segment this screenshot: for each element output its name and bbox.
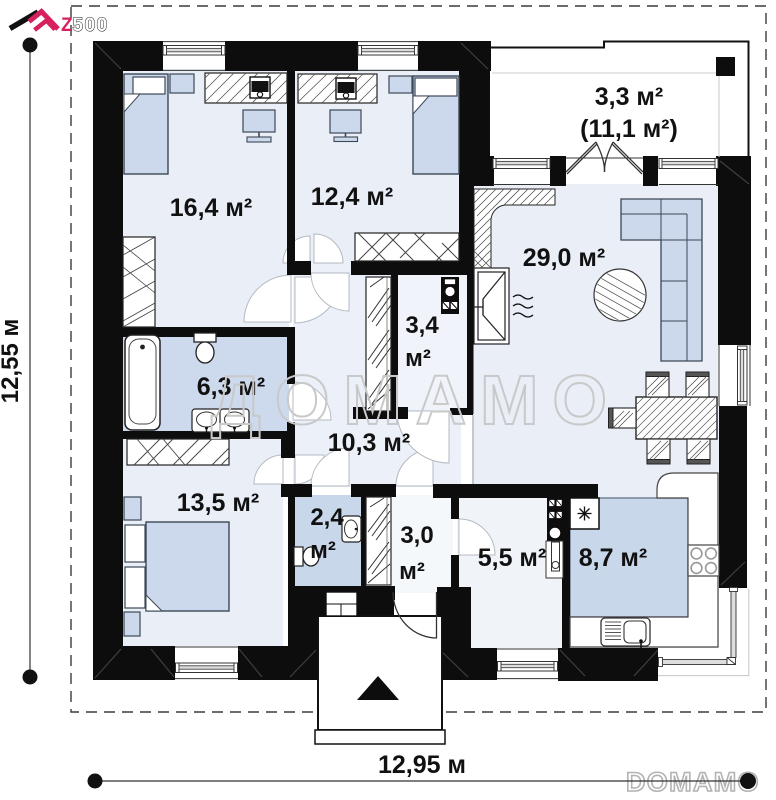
svg-text:12,95 м: 12,95 м [378, 751, 466, 779]
svg-text:3,0: 3,0 [400, 522, 433, 549]
svg-text:ДОМАМО: ДОМАМО [211, 361, 621, 439]
svg-text:3,3 м²: 3,3 м² [595, 83, 664, 111]
svg-text:5,5 м²: 5,5 м² [478, 544, 547, 572]
svg-text:12,4 м²: 12,4 м² [311, 183, 393, 211]
svg-text:3,4: 3,4 [405, 312, 439, 339]
svg-text:500: 500 [73, 15, 109, 36]
svg-text:29,0 м²: 29,0 м² [523, 244, 605, 272]
svg-text:DOMAMO: DOMAMO [626, 767, 760, 797]
svg-text:12,55 м: 12,55 м [0, 319, 24, 403]
svg-text:2,4: 2,4 [310, 504, 344, 531]
svg-text:Z: Z [61, 15, 73, 36]
svg-text:(11,1 м²): (11,1 м²) [580, 115, 678, 143]
svg-text:м²: м² [310, 537, 336, 564]
svg-text:13,5 м²: 13,5 м² [177, 489, 259, 517]
svg-text:16,4 м²: 16,4 м² [170, 194, 252, 222]
svg-text:м²: м² [399, 558, 425, 585]
svg-text:8,7 м²: 8,7 м² [579, 544, 648, 572]
